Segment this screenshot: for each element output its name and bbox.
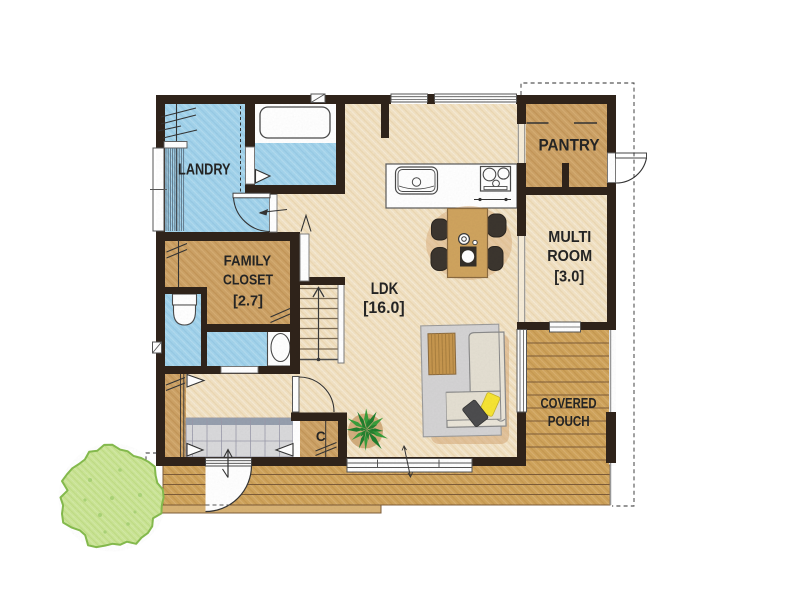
svg-text:PANTRY: PANTRY <box>539 135 601 154</box>
svg-text:[3.0]: [3.0] <box>554 269 584 286</box>
svg-text:[16.0]: [16.0] <box>363 298 405 317</box>
svg-text:C: C <box>316 429 326 444</box>
svg-text:LANDRY: LANDRY <box>178 162 231 179</box>
svg-text:COVERED: COVERED <box>541 396 597 412</box>
svg-text:[2.7]: [2.7] <box>233 292 263 309</box>
svg-text:LDK: LDK <box>371 279 399 298</box>
svg-text:ROOM: ROOM <box>547 248 592 265</box>
svg-text:CLOSET: CLOSET <box>223 272 273 289</box>
svg-text:POUCH: POUCH <box>548 414 590 430</box>
svg-text:MULTI: MULTI <box>548 229 591 246</box>
svg-text:FAMILY: FAMILY <box>224 252 272 269</box>
